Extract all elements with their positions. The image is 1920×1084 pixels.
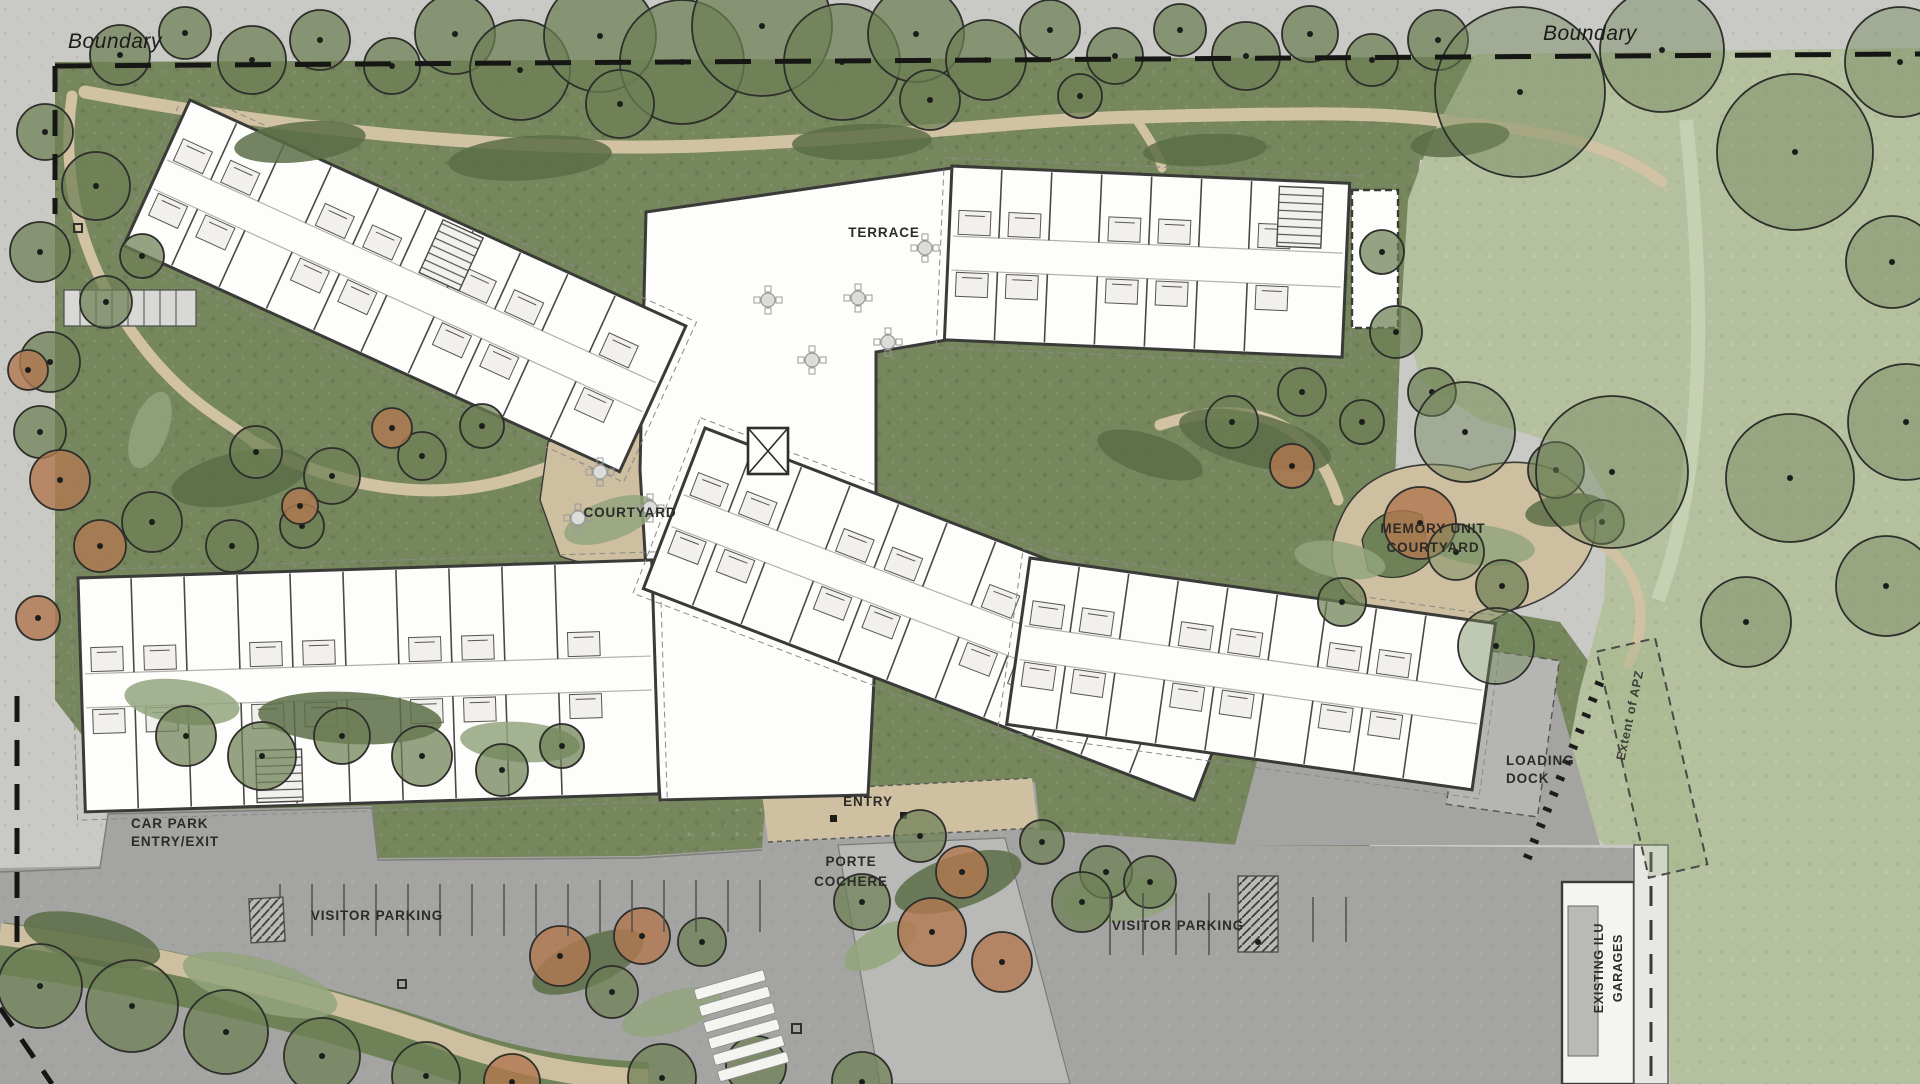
- tree-trunk: [329, 473, 335, 479]
- tree-canopy: [284, 1018, 360, 1084]
- bed-pillow: [150, 650, 170, 651]
- tree-trunk: [419, 753, 425, 759]
- tree-trunk: [149, 519, 155, 525]
- memory-unit-courtyard-label-line1: MEMORY UNIT: [1380, 521, 1485, 536]
- bed: [91, 647, 124, 672]
- bed-pillow: [309, 645, 329, 646]
- tree-trunk: [253, 449, 259, 455]
- bed: [567, 632, 600, 657]
- tree-trunk: [1229, 419, 1235, 425]
- tree-trunk: [297, 503, 303, 509]
- tree-trunk: [1243, 53, 1249, 59]
- tree-trunk: [557, 953, 563, 959]
- bed-pillow: [99, 714, 119, 715]
- tree-trunk: [37, 249, 43, 255]
- tree-trunk: [1079, 899, 1085, 905]
- car-park-label-line2: ENTRY/EXIT: [131, 834, 219, 849]
- loading-dock-label-line1: LOADING: [1506, 753, 1575, 768]
- tree-trunk: [499, 767, 505, 773]
- tree-trunk: [389, 425, 395, 431]
- bed: [250, 642, 283, 667]
- bed: [1079, 608, 1114, 636]
- tree-trunk: [57, 477, 63, 483]
- bed-pillow: [576, 699, 596, 700]
- tree-trunk: [959, 869, 965, 875]
- bed: [1170, 683, 1205, 711]
- tree-trunk: [1493, 643, 1499, 649]
- tree-trunk: [1103, 869, 1109, 875]
- bed: [1376, 650, 1411, 678]
- tree-trunk: [1659, 47, 1665, 53]
- tree-trunk: [1609, 469, 1615, 475]
- tree-trunk: [182, 30, 188, 36]
- site-plan: Boundary Boundary TERRACE COURTYARD MEMO…: [0, 0, 1920, 1084]
- wing-b: [936, 158, 1358, 366]
- tree-trunk: [1077, 93, 1083, 99]
- tree-trunk: [1379, 249, 1385, 255]
- bed-pillow: [574, 637, 594, 638]
- tree-trunk: [42, 129, 48, 135]
- tree-trunk: [1883, 583, 1889, 589]
- tree-trunk: [1499, 583, 1505, 589]
- tree-trunk: [25, 367, 31, 373]
- table: [805, 353, 819, 367]
- bed: [1108, 217, 1141, 242]
- tree-trunk: [479, 423, 485, 429]
- tree-trunk: [93, 183, 99, 189]
- tree-trunk: [223, 1029, 229, 1035]
- tree-trunk: [1289, 463, 1295, 469]
- tree-trunk: [1039, 839, 1045, 845]
- bed: [1071, 669, 1106, 697]
- bed: [1318, 704, 1353, 732]
- boundary-label-left: Boundary: [68, 30, 163, 53]
- tree-trunk: [597, 33, 603, 39]
- tree-trunk: [183, 733, 189, 739]
- tree-trunk: [927, 97, 933, 103]
- bed: [462, 635, 495, 660]
- table: [593, 465, 607, 479]
- tree-trunk: [1393, 329, 1399, 335]
- tree-trunk: [859, 899, 865, 905]
- bed: [1030, 601, 1065, 629]
- tree-trunk: [319, 1053, 325, 1059]
- site-plan-drawing: Boundary Boundary TERRACE COURTYARD MEMO…: [0, 0, 1920, 1084]
- terrace-label: TERRACE: [848, 225, 920, 240]
- tree-trunk: [609, 989, 615, 995]
- tree-trunk: [1462, 429, 1468, 435]
- tree-trunk: [1889, 259, 1895, 265]
- tree-trunk: [699, 939, 705, 945]
- table: [761, 293, 775, 307]
- bed-pillow: [256, 647, 276, 648]
- table: [918, 241, 932, 255]
- bed: [1008, 213, 1041, 238]
- tree-trunk: [1339, 599, 1345, 605]
- bed-pillow: [415, 642, 435, 643]
- tree-trunk: [452, 31, 458, 37]
- tree-trunk: [1299, 389, 1305, 395]
- hatched-stall-west: [249, 897, 285, 943]
- stair-core: [1277, 186, 1324, 248]
- bed: [1255, 285, 1288, 310]
- tree-trunk: [129, 1003, 135, 1009]
- bed-pillow: [470, 702, 490, 703]
- bed: [1219, 690, 1254, 718]
- bed: [93, 709, 126, 734]
- tree-trunk: [259, 753, 265, 759]
- boundary-label-right: Boundary: [1543, 22, 1638, 45]
- tree-trunk: [617, 101, 623, 107]
- tree-trunk: [1435, 37, 1441, 43]
- courtyard-label: COURTYARD: [583, 505, 676, 520]
- porte-cochere-label-line2: COCHERE: [814, 874, 888, 889]
- table: [851, 291, 865, 305]
- tree-trunk: [517, 67, 523, 73]
- bed: [409, 637, 442, 662]
- tree-trunk: [1792, 149, 1798, 155]
- stall-dot: [1255, 939, 1261, 945]
- tree-trunk: [35, 615, 41, 621]
- tree-trunk: [1897, 59, 1903, 65]
- tree-trunk: [759, 23, 765, 29]
- bed: [958, 210, 991, 235]
- table: [881, 335, 895, 349]
- tree-trunk: [423, 1073, 429, 1079]
- tree-trunk: [1359, 419, 1365, 425]
- tree-trunk: [1369, 57, 1375, 63]
- bed-pillow: [417, 704, 437, 705]
- tree-trunk: [37, 983, 43, 989]
- tree-trunk: [999, 959, 1005, 965]
- loading-dock-label-line2: DOCK: [1506, 771, 1549, 786]
- tree-trunk: [249, 57, 255, 63]
- bed: [1368, 711, 1403, 739]
- bed: [1228, 629, 1263, 657]
- bed: [1178, 622, 1213, 650]
- porte-cochere-label-line1: PORTE: [825, 854, 876, 869]
- bed: [303, 640, 336, 665]
- tree-trunk: [1517, 89, 1523, 95]
- tree-trunk: [1177, 27, 1183, 33]
- existing-ilu-label-line2: GARAGES: [1611, 934, 1625, 1002]
- tree-trunk: [317, 37, 323, 43]
- bed: [1005, 274, 1038, 299]
- bed: [1155, 281, 1188, 306]
- entry-label: ENTRY: [843, 794, 893, 809]
- tree-trunk: [917, 833, 923, 839]
- tree-trunk: [1307, 31, 1313, 37]
- tree-trunk: [1112, 53, 1118, 59]
- memory-unit-courtyard-label-line2: COURTYARD: [1386, 540, 1479, 555]
- tree-trunk: [1147, 879, 1153, 885]
- tree-trunk: [229, 543, 235, 549]
- tree-trunk: [929, 929, 935, 935]
- tree-trunk: [97, 543, 103, 549]
- existing-ilu-label-line1: EXISTING ILU: [1592, 923, 1606, 1013]
- tree-trunk: [639, 933, 645, 939]
- bed: [144, 645, 177, 670]
- bed-pillow: [468, 640, 488, 641]
- lift-core: [748, 428, 788, 474]
- entry-column: [830, 815, 837, 822]
- bed: [463, 697, 496, 722]
- tree-trunk: [1903, 419, 1909, 425]
- tree-trunk: [913, 31, 919, 37]
- tree-trunk: [1787, 475, 1793, 481]
- car-park-label-line1: CAR PARK: [131, 816, 208, 831]
- visitor-parking-east-label: VISITOR PARKING: [1112, 918, 1244, 933]
- bed: [1021, 662, 1056, 690]
- tree-trunk: [1047, 27, 1053, 33]
- tree-trunk: [103, 299, 109, 305]
- bed: [1105, 279, 1138, 304]
- bed: [955, 272, 988, 297]
- tree-trunk: [659, 1075, 665, 1081]
- tree-trunk: [1743, 619, 1749, 625]
- tree-trunk: [419, 453, 425, 459]
- bed: [1158, 219, 1191, 244]
- tree-trunk: [559, 743, 565, 749]
- bed: [1327, 643, 1362, 671]
- tree-trunk: [139, 253, 145, 259]
- visitor-parking-west-label: VISITOR PARKING: [311, 908, 443, 923]
- bed-pillow: [97, 652, 117, 653]
- bed: [569, 694, 602, 719]
- tree-trunk: [37, 429, 43, 435]
- tree-trunk: [339, 733, 345, 739]
